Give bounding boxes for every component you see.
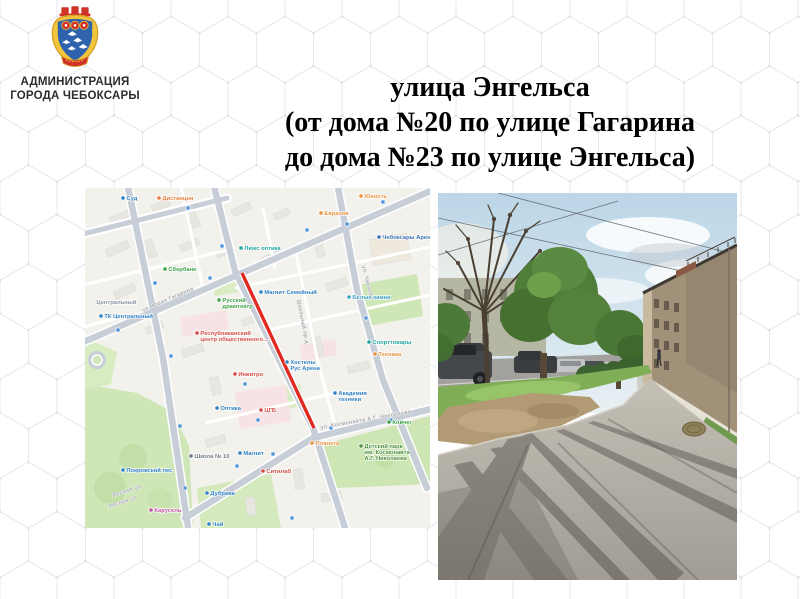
slide-title: улица Энгельса (от дома №20 по улице Гаг…: [180, 70, 800, 175]
bus-stop-icon: [178, 424, 182, 428]
poi-label: Чебоксары Арена: [382, 234, 430, 241]
bus-stop-icon: [381, 200, 385, 204]
poi-icon: [157, 196, 161, 200]
poi-icon: [367, 340, 371, 344]
presentation-slide: АДМИНИСТРАЦИЯ ГОРОДА ЧЕБОКСАРЫ улица Энг…: [0, 0, 800, 599]
poi-icon: [195, 331, 199, 335]
org-name-line1: АДМИНИСТРАЦИЯ: [6, 75, 144, 89]
bus-stop-icon: [256, 418, 260, 422]
poi-label: Белые камни: [352, 295, 391, 301]
poi-label: Спорттовары: [372, 340, 411, 346]
poi-label: Планета: [315, 441, 340, 447]
street-map: ул. Юрия Гагаринаул. Космонавта А.Г. Ник…: [85, 188, 430, 528]
poi-icon: [215, 406, 219, 410]
title-line3: до дома №23 по улице Энгельса): [285, 142, 695, 173]
bus-stop-icon: [220, 244, 224, 248]
bus-stop-icon: [364, 316, 368, 320]
map-roundabout: [88, 351, 106, 369]
bus-stop-icon: [271, 452, 275, 456]
bus-stop-icon: [208, 276, 212, 280]
bus-stop-icon: [235, 464, 239, 468]
poi-label: Суд: [126, 196, 137, 202]
map-poi: ХостелыРус Арена: [285, 360, 321, 372]
map-poi: Школа № 10: [189, 454, 230, 460]
poi-icon: [238, 451, 242, 455]
poi-icon: [359, 194, 363, 198]
poi-label: Дистанция: [162, 196, 193, 202]
poi-icon: [359, 444, 363, 448]
poi-label: ЦГБ: [264, 408, 276, 414]
poi-icon: [285, 360, 289, 364]
poi-icon: [387, 420, 391, 424]
cheboksary-coat-of-arms-icon: [46, 6, 104, 70]
map-poi: Белые камни: [347, 295, 391, 301]
poi-label: Люкс оптика: [244, 246, 281, 252]
poi-label: Евразия: [324, 211, 348, 217]
org-name: АДМИНИСТРАЦИЯ ГОРОДА ЧЕБОКСАРЫ: [6, 75, 144, 104]
map-poi: Магнит Семейный: [259, 289, 318, 296]
bus-stop-icon: [169, 354, 173, 358]
poi-icon: [205, 491, 209, 495]
poi-icon: [189, 454, 193, 458]
poi-label: Техника: [378, 352, 402, 358]
poi-icon: [319, 211, 323, 215]
map-poi: Люкс оптика: [239, 246, 282, 252]
poi-icon: [163, 267, 167, 271]
poi-label: Дубрава: [210, 490, 235, 497]
poi-icon: [239, 246, 243, 250]
map-poi: Инвитро: [233, 372, 264, 378]
title-line1: улица Энгельса: [390, 72, 589, 103]
map-poi: Чебоксары Арена: [377, 234, 430, 241]
poi-icon: [310, 441, 314, 445]
poi-label: Оптика: [220, 406, 241, 412]
poi-icon: [347, 295, 351, 299]
title-line2: (от дома №20 по улице Гагарина: [285, 107, 695, 138]
poi-icon: [121, 196, 125, 200]
map-poi: Карусель: [149, 508, 182, 514]
manhole: [683, 422, 706, 436]
poi-label: Магнит Семейный: [264, 289, 317, 296]
map-poi: ТК Центральный: [99, 313, 154, 320]
poi-label: Магнит: [243, 451, 264, 457]
map-poi: Спорттовары: [367, 340, 412, 346]
org-name-line2: ГОРОДА ЧЕБОКСАРЫ: [6, 89, 144, 103]
poi-icon: [373, 352, 377, 356]
poi-label: Покровский лес: [126, 467, 173, 474]
poi-label: Чай: [212, 521, 223, 528]
bus-stop-icon: [305, 228, 309, 232]
poi-label: Ситилаб: [266, 468, 291, 475]
bus-stop-icon: [183, 486, 187, 490]
poi-icon: [99, 314, 103, 318]
map-poi: Сбербанк: [163, 266, 196, 273]
poi-icon: [121, 468, 125, 472]
poi-icon: [207, 522, 211, 526]
bus-stop-icon: [243, 382, 247, 386]
bus-stop-icon: [116, 328, 120, 332]
map-poi: Покровский лес: [121, 467, 173, 474]
poi-icon: [333, 391, 337, 395]
street-photo: [438, 193, 737, 580]
bus-stop-icon: [153, 281, 157, 285]
bus-stop-icon: [290, 516, 294, 520]
poi-label: Ковчег: [392, 420, 412, 426]
poi-label: Центральный: [96, 299, 136, 306]
poi-label: ТК Центральный: [104, 313, 153, 320]
poi-icon: [259, 408, 263, 412]
map-canvas: ул. Юрия Гагаринаул. Космонавта А.Г. Ник…: [85, 188, 430, 528]
poi-label: Школа № 10: [194, 454, 229, 460]
map-poi: Центральный: [96, 299, 136, 306]
poi-icon: [149, 508, 153, 512]
poi-icon: [377, 235, 381, 239]
map-poi: Дистанция: [157, 196, 194, 202]
poi-label: Юность: [364, 194, 387, 200]
bus-stop-icon: [186, 206, 190, 210]
poi-label: Инвитро: [238, 372, 263, 378]
photo-canvas: [438, 193, 737, 580]
poi-icon: [259, 290, 263, 294]
poi-icon: [261, 469, 265, 473]
city-administration-logo: АДМИНИСТРАЦИЯ ГОРОДА ЧЕБОКСАРЫ: [6, 6, 144, 104]
poi-label: Карусель: [154, 508, 182, 514]
bus-stop-icon: [345, 222, 349, 226]
poi-icon: [217, 298, 221, 302]
poi-icon: [233, 372, 237, 376]
map-poi: Дубрава: [205, 490, 236, 497]
poi-label: Сбербанк: [168, 266, 196, 273]
